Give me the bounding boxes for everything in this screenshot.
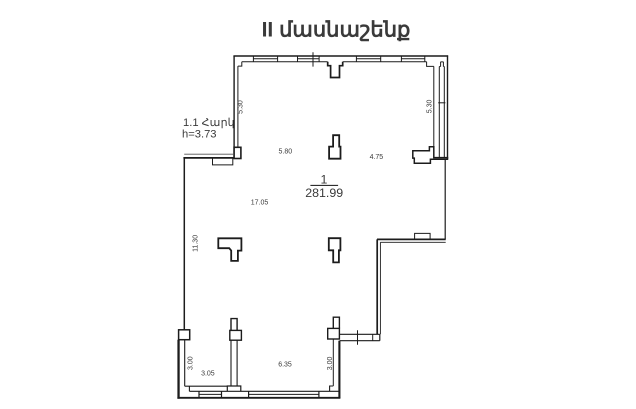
- svg-text:5.30: 5.30: [427, 99, 434, 113]
- svg-text:17.05: 17.05: [251, 200, 269, 207]
- svg-text:3.00: 3.00: [327, 356, 334, 370]
- svg-text:4.75: 4.75: [370, 154, 384, 161]
- svg-text:3.05: 3.05: [201, 371, 215, 378]
- svg-text:11.30: 11.30: [193, 235, 200, 252]
- svg-text:5.80: 5.80: [278, 149, 292, 156]
- svg-text:3.00: 3.00: [188, 356, 195, 370]
- svg-text:6.35: 6.35: [278, 362, 292, 369]
- svg-text:281.99: 281.99: [305, 186, 343, 200]
- svg-text:1.1 Հարկ: 1.1 Հարկ: [183, 117, 235, 129]
- svg-text:II մասնաշենք: II մասնաշենք: [262, 18, 411, 41]
- svg-text:5.30: 5.30: [238, 100, 245, 114]
- svg-text:h=3.73: h=3.73: [182, 128, 217, 140]
- svg-text:1: 1: [321, 173, 328, 187]
